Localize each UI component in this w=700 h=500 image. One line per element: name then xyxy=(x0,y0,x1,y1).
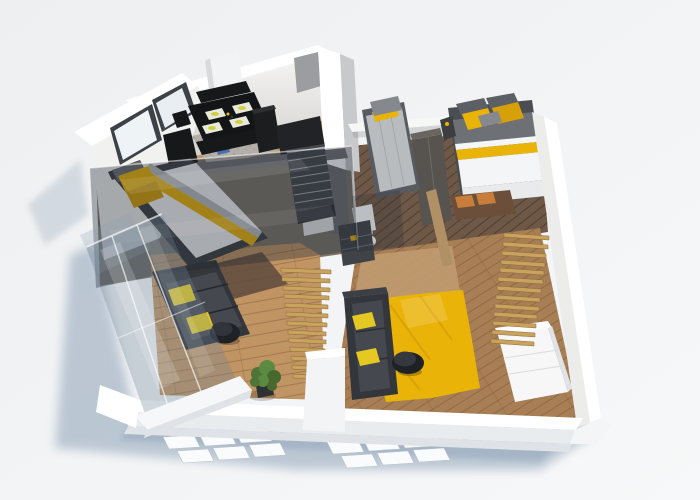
candle xyxy=(231,116,233,118)
bench-cushion xyxy=(455,195,475,208)
floor-plan-render xyxy=(0,0,700,500)
window-pane xyxy=(249,443,286,457)
plate xyxy=(208,126,216,130)
window-pane xyxy=(163,435,200,449)
back-wall-gray-panel xyxy=(294,52,321,93)
plate xyxy=(211,112,219,116)
bench-cushion xyxy=(476,192,496,205)
round-table-top xyxy=(394,352,416,367)
window-pane xyxy=(377,451,414,465)
bath-overlay xyxy=(352,190,404,252)
window-pane xyxy=(213,446,250,460)
window-pane xyxy=(177,449,214,463)
candle xyxy=(227,113,230,116)
stub-wall xyxy=(303,356,345,432)
plate xyxy=(238,106,246,110)
lamp xyxy=(445,122,449,126)
floor-plan-canvas xyxy=(0,0,700,500)
window-pane xyxy=(413,448,450,462)
plate xyxy=(235,120,243,124)
window-pane xyxy=(341,454,378,468)
